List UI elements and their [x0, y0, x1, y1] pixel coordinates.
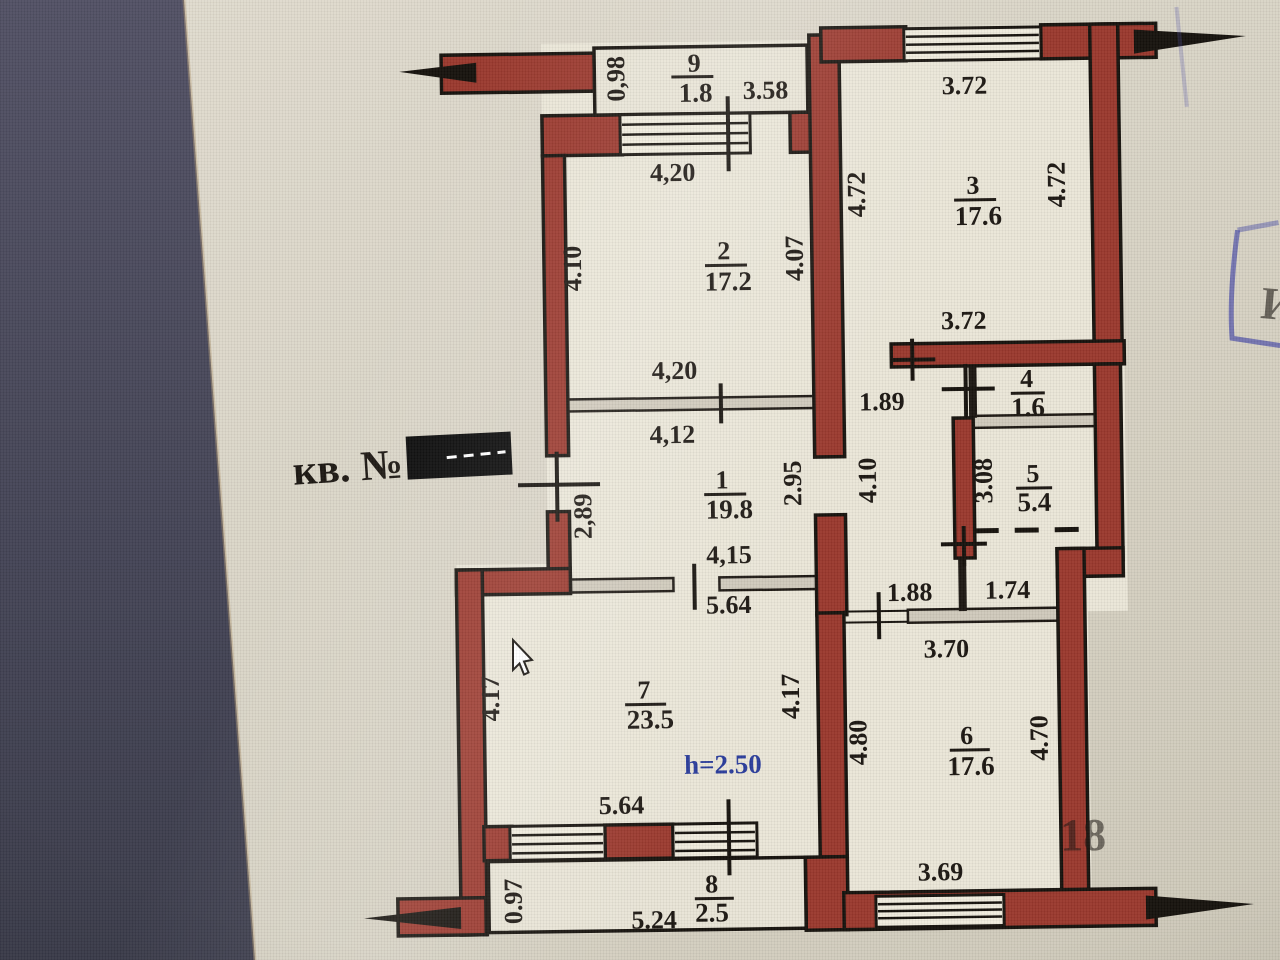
- room-area: 23.5: [626, 704, 674, 735]
- wall-segment: [1090, 24, 1123, 364]
- room-area: 19.8: [706, 494, 754, 525]
- window-hatch-line: [512, 852, 603, 853]
- room-number: 8: [705, 869, 718, 898]
- room-number: 1: [715, 465, 728, 494]
- dim-label: 0.97: [499, 878, 529, 924]
- partition-wall: [908, 608, 1058, 623]
- dim-label: 4,20: [650, 158, 696, 188]
- redaction-box: [406, 432, 513, 480]
- dim-label: 1.89: [859, 387, 905, 417]
- window-hatch-line: [675, 841, 755, 842]
- axis-mark: [694, 564, 695, 610]
- partition-wall: [567, 396, 817, 411]
- dim-label: 1.88: [887, 577, 933, 607]
- dim-label: 3.72: [942, 71, 988, 101]
- wall-segment: [542, 156, 568, 456]
- axis-mark: [557, 452, 558, 522]
- dim-label: 3.08: [969, 458, 999, 504]
- ceiling-height-note: h=2.50: [684, 749, 762, 780]
- dim-label: 2,89: [568, 493, 598, 539]
- room-area: 17.6: [954, 200, 1002, 231]
- opening-edge: [844, 611, 908, 612]
- dim-label: 4.10: [853, 457, 883, 503]
- wall-segment: [821, 27, 906, 62]
- wall-segment: [809, 35, 845, 457]
- room-area: 2.5: [695, 897, 729, 927]
- dim-label: 5.64: [599, 790, 645, 820]
- axis-mark: [879, 592, 880, 639]
- watermark-text: 18: [1060, 809, 1107, 861]
- axis-mark: [728, 799, 729, 875]
- dim-label: 4.07: [780, 235, 810, 281]
- room-number: 3: [966, 171, 979, 200]
- dim-label: 4.72: [842, 172, 872, 218]
- window-hatch-line: [878, 910, 1002, 912]
- axis-mark: [964, 526, 965, 566]
- window-hatch-line: [878, 903, 1002, 905]
- axis-mark: [942, 389, 995, 390]
- dim-label: 4.17: [776, 673, 806, 719]
- wall-segment: [542, 115, 623, 156]
- room-number: 4: [1020, 364, 1033, 393]
- wall-segment: [815, 515, 846, 615]
- wall-segment: [1094, 364, 1123, 560]
- axis-mark: [728, 96, 729, 171]
- apartment-number-label: кв. №: [291, 442, 404, 495]
- dim-label: 4.10: [558, 245, 588, 291]
- dim-label: 3.58: [743, 75, 789, 105]
- redaction: [406, 432, 513, 480]
- axis-mark: [721, 383, 722, 423]
- room-number: 7: [637, 675, 650, 704]
- dim-label: 4.17: [476, 676, 506, 722]
- dim-label: 4,12: [649, 420, 695, 450]
- dim-label: 4,20: [652, 356, 698, 386]
- window: [510, 825, 605, 860]
- dim-label: 4.70: [1024, 715, 1054, 761]
- axis-mark: [912, 339, 913, 381]
- dim-label: 3.70: [923, 634, 969, 664]
- wall-segment: [805, 857, 848, 931]
- dim-label: 1.74: [985, 575, 1031, 605]
- window-hatch-line: [675, 850, 755, 851]
- dim-label: 4,15: [706, 540, 752, 570]
- room-number: 2: [717, 236, 730, 265]
- dim-label: 5.24: [631, 905, 677, 935]
- partition-wall: [719, 576, 819, 590]
- room-area: 1.6: [1011, 392, 1045, 422]
- room-number: 9: [687, 49, 700, 78]
- dim-label: 0,98: [601, 56, 631, 102]
- window-hatch-line: [512, 834, 603, 835]
- window: [876, 894, 1004, 927]
- apartment-caption: кв. №: [291, 442, 404, 495]
- dashed-partition: [975, 529, 1095, 531]
- dim-label: 4.72: [1042, 162, 1072, 208]
- dim-label: 3.69: [918, 857, 964, 887]
- opening-edge: [844, 622, 908, 623]
- wall-segment: [891, 341, 1124, 367]
- window: [673, 823, 757, 858]
- stamp-letter: И: [1259, 277, 1280, 331]
- wall-segment: [605, 824, 673, 859]
- room-number: 6: [960, 721, 973, 750]
- room-area: 17.2: [704, 266, 752, 297]
- window: [904, 27, 1041, 61]
- wall-segment: [456, 570, 487, 935]
- room-number: 5: [1026, 459, 1039, 488]
- wall-segment: [484, 826, 512, 860]
- floor-plan-photo: 9 1.8 2 17.2 3 17.6 1 19.8 4 1.6 5 5.4 7…: [0, 0, 1280, 960]
- dim-label: 5.64: [706, 590, 752, 620]
- dim-label: 2.95: [778, 460, 808, 506]
- room-area: 5.4: [1017, 487, 1051, 517]
- room-area: 17.6: [947, 751, 995, 782]
- axis-mark: [965, 364, 966, 418]
- window-hatch-line: [878, 916, 1002, 918]
- floor-plan-svg: 9 1.8 2 17.2 3 17.6 1 19.8 4 1.6 5 5.4 7…: [0, 0, 1280, 960]
- dim-label: 3.72: [941, 306, 987, 336]
- window: [620, 113, 751, 155]
- window-hatch-line: [512, 843, 603, 844]
- dim-label: 4.80: [843, 720, 873, 766]
- room-area: 1.8: [678, 77, 712, 107]
- window-hatch-line: [675, 832, 755, 833]
